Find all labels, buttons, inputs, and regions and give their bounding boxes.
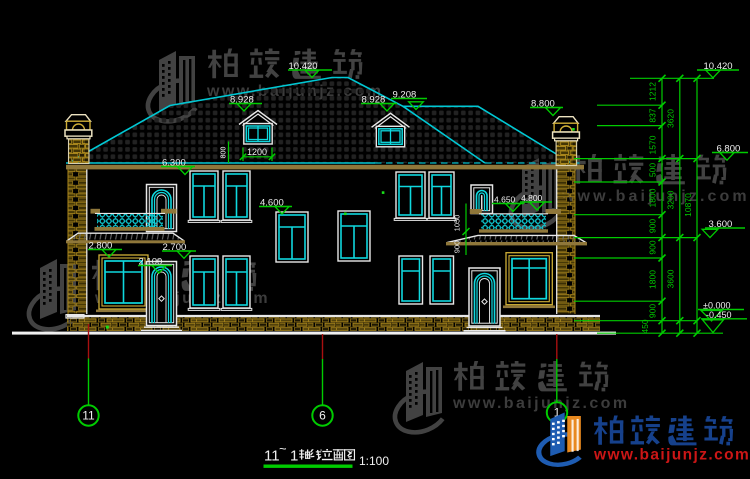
svg-text:1800: 1800 <box>648 270 658 289</box>
svg-text:1570: 1570 <box>648 135 658 154</box>
svg-text:~: ~ <box>279 441 287 456</box>
svg-text:800: 800 <box>221 147 228 159</box>
svg-text:900: 900 <box>648 240 658 254</box>
svg-text:11: 11 <box>264 448 280 465</box>
svg-text:837: 837 <box>648 108 658 122</box>
svg-text:500: 500 <box>648 163 658 177</box>
svg-text:www.baijunjz.com: www.baijunjz.com <box>452 395 630 412</box>
svg-text:1:100: 1:100 <box>359 454 389 468</box>
svg-text:1200: 1200 <box>247 147 267 157</box>
svg-text:900: 900 <box>648 304 658 318</box>
svg-text:11: 11 <box>82 409 95 423</box>
svg-text:3200: 3200 <box>665 190 675 209</box>
svg-text:www.baijunjz.com: www.baijunjz.com <box>593 447 750 464</box>
svg-text:900: 900 <box>648 219 658 233</box>
svg-text:1050: 1050 <box>453 215 462 232</box>
svg-text:1212: 1212 <box>648 82 658 101</box>
svg-text:1800: 1800 <box>648 188 658 207</box>
svg-text:10870: 10870 <box>683 193 693 217</box>
svg-text:3620: 3620 <box>665 109 675 128</box>
svg-text:450: 450 <box>640 319 650 333</box>
svg-text:3600: 3600 <box>665 269 675 288</box>
svg-text:1: 1 <box>290 448 298 465</box>
svg-text:900: 900 <box>453 241 462 254</box>
svg-text:6: 6 <box>319 409 326 423</box>
